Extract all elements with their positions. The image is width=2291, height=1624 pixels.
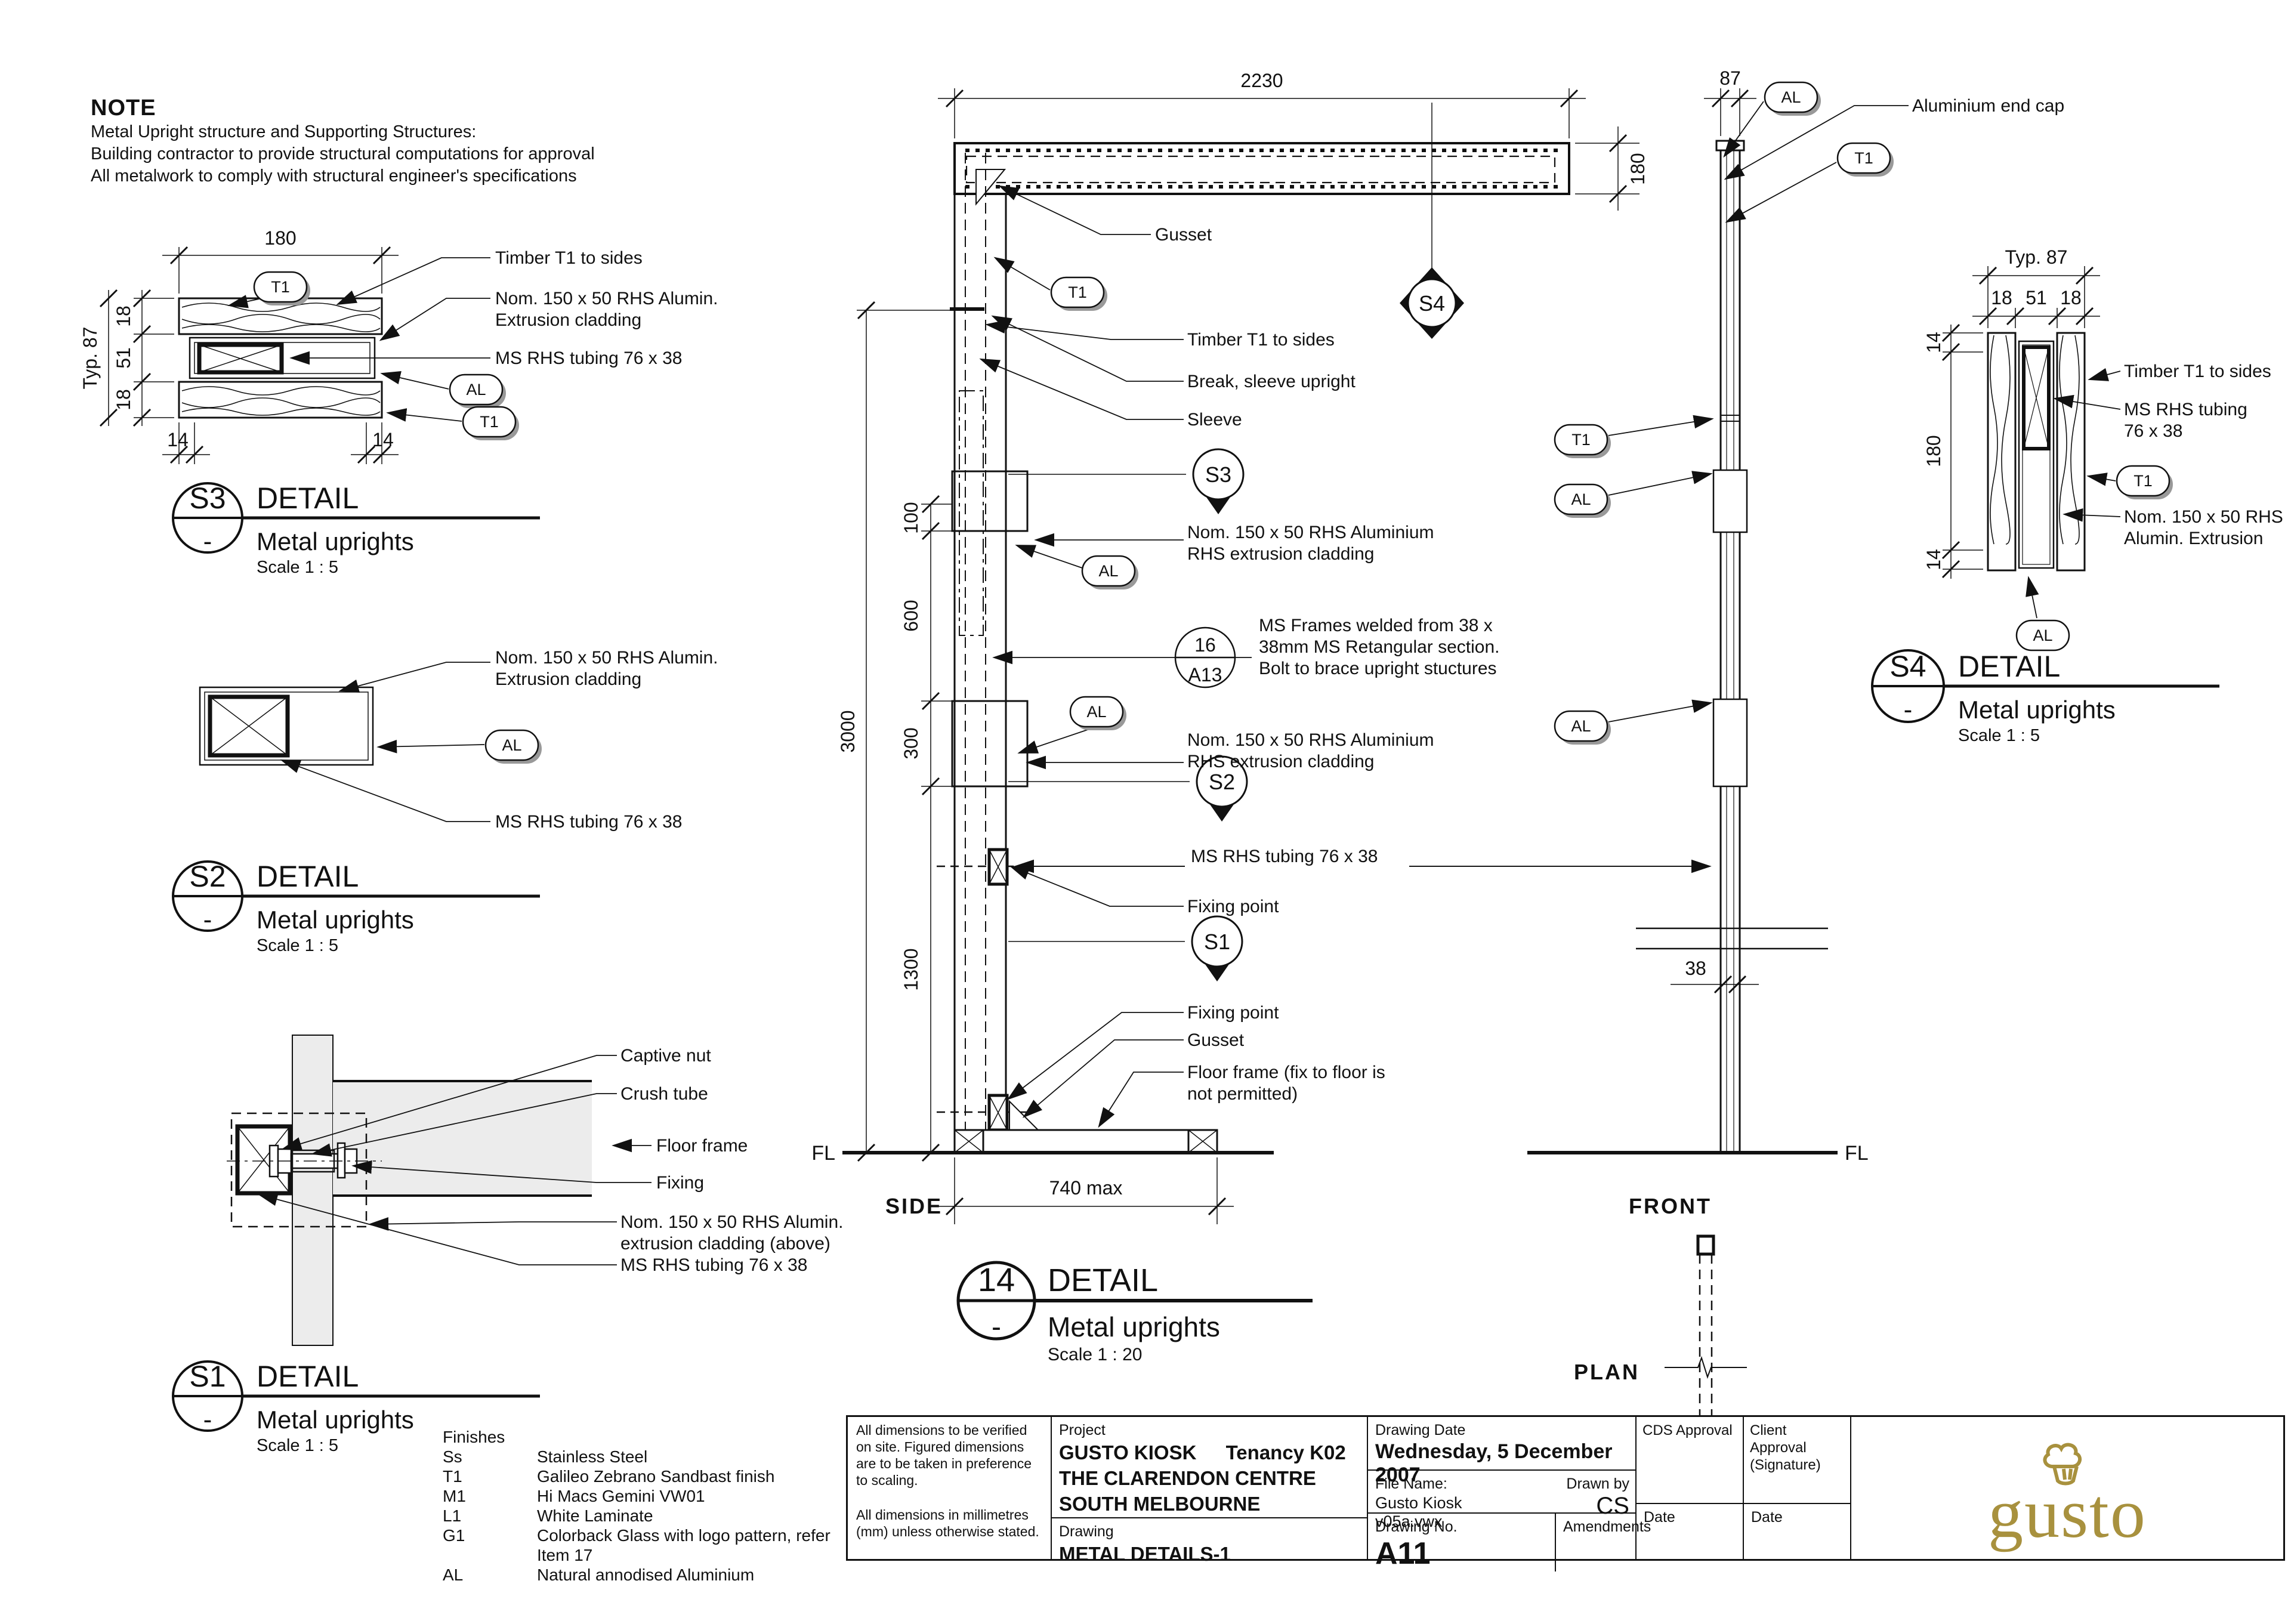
dim-300: 300	[900, 727, 922, 759]
svg-text:AL: AL	[1098, 562, 1118, 580]
svg-text:Scale 1 : 5: Scale 1 : 5	[257, 558, 338, 577]
dim-1300: 1300	[900, 948, 922, 990]
label-alum-clad: Nom. 150 x 50 RHS Alumin.	[495, 648, 718, 668]
titleblock-cds-approval: CDS Approval Date	[1637, 1417, 1744, 1559]
label-clad-above2: extrusion cladding (above)	[620, 1234, 830, 1253]
svg-text:T1: T1	[271, 278, 290, 296]
svg-text:-: -	[1904, 695, 1913, 724]
dim-100: 100	[900, 502, 922, 533]
label-timber-t1: Timber T1 to sides	[495, 248, 643, 268]
front-label: FRONT	[1629, 1194, 1712, 1218]
svg-text:Metal uprights: Metal uprights	[1958, 696, 2116, 724]
drawing-title: METAL DETAILS-1	[1052, 1540, 1367, 1567]
plan-label: PLAN	[1574, 1360, 1639, 1384]
svg-text:T1: T1	[1571, 431, 1591, 449]
svg-text:T1: T1	[1854, 149, 1873, 167]
detail-14-title: 14 - DETAIL Metal uprights Scale 1 : 20	[957, 1261, 1313, 1364]
svg-text:DETAIL: DETAIL	[1048, 1262, 1158, 1298]
project-line1: GUSTO KIOSK Tenancy K02	[1052, 1439, 1367, 1466]
fl-right: FL	[1845, 1142, 1869, 1165]
s3-figure: 180 18 51 18 Typ. 87 14 14 Timber T1 to …	[79, 227, 718, 464]
label-fixing-point: Fixing point	[1187, 1003, 1279, 1023]
s2-figure: Nom. 150 x 50 RHS Alumin. Extrusion clad…	[200, 648, 718, 832]
section-marker-s3: S3	[1008, 449, 1243, 514]
note-line: Building contractor to provide structura…	[91, 143, 747, 165]
gusto-wordmark: gusto	[1988, 1487, 2147, 1540]
client-date-label: Date	[1744, 1504, 1850, 1559]
label-rhs-alumin1: Nom. 150 x 50 RHS	[2124, 507, 2283, 527]
section-marker-s1: S1	[1008, 916, 1242, 981]
finish-item: T1Galileo Zebrano Sandbast finish	[443, 1466, 836, 1486]
t1-tag: T1	[1555, 425, 1611, 458]
label-ms-frames3: Bolt to brace upright stuctures	[1259, 659, 1497, 678]
dim-14: 14	[1923, 549, 1944, 570]
svg-text:-: -	[203, 527, 212, 556]
label-alum-end-cap: Aluminium end cap	[1912, 96, 2064, 116]
svg-text:S2: S2	[1209, 770, 1235, 794]
drawing-label: Drawing	[1052, 1518, 1367, 1540]
note-line: Metal Upright structure and Supporting S…	[91, 121, 747, 143]
svg-text:-: -	[992, 1311, 1001, 1343]
dim-typ87: Typ. 87	[79, 327, 101, 390]
date-label: Drawing Date	[1368, 1417, 1635, 1439]
dim-18: 18	[2060, 287, 2082, 308]
dim-18: 18	[113, 305, 134, 327]
finishes-legend: Finishes SsStainless Steel T1Galileo Zeb…	[443, 1427, 836, 1585]
label-alum-clad: Nom. 150 x 50 RHS Alumin.	[495, 289, 718, 308]
label-alum-clad1: Nom. 150 x 50 RHS Aluminium	[1187, 730, 1434, 750]
label-timber-t1: Timber T1 to sides	[2124, 362, 2271, 381]
al-tag: AL	[1555, 711, 1611, 745]
label-alum-clad2: RHS extrusion cladding	[1187, 544, 1375, 564]
label-floor-frame-note1: Floor frame (fix to floor is	[1187, 1063, 1385, 1082]
svg-text:S1: S1	[189, 1360, 226, 1393]
note-block: NOTE Metal Upright structure and Support…	[91, 95, 747, 187]
dim-87: 87	[1719, 67, 1741, 89]
titleblock-date-col: Drawing Date Wednesday, 5 December 2007 …	[1368, 1417, 1637, 1559]
finish-item: G1Colorback Glass with logo pattern, ref…	[443, 1526, 836, 1565]
svg-text:AL: AL	[1571, 490, 1591, 508]
label-fixing: Fixing	[656, 1173, 704, 1193]
svg-text:Scale 1 : 5: Scale 1 : 5	[1958, 726, 2040, 745]
svg-text:S4: S4	[1419, 291, 1445, 316]
titleblock-client-approval: Client Approval (Signature) Date	[1744, 1417, 1851, 1559]
title-block: All dimensions to be verified on site. F…	[846, 1415, 2285, 1561]
project-line3: SOUTH MELBOURNE	[1052, 1492, 1367, 1517]
svg-text:T1: T1	[1068, 283, 1087, 301]
dim-2230: 2230	[1240, 70, 1283, 91]
label-ms-rhs: MS RHS tubing 76 x 38	[1191, 847, 1378, 866]
t1-tag: T1	[254, 272, 310, 305]
al-tag: AL	[2017, 620, 2069, 650]
svg-text:-: -	[203, 905, 212, 934]
svg-text:A13: A13	[1188, 664, 1222, 686]
amendments-label: Amendments	[1556, 1514, 1635, 1536]
t1-tag: T1	[1051, 277, 1107, 311]
detail-ref-16-a13: 16 A13	[994, 628, 1252, 687]
label-ms-frames2: 38mm MS Retangular section.	[1259, 637, 1500, 657]
label-crush-tube: Crush tube	[620, 1084, 708, 1104]
svg-text:Scale 1 : 5: Scale 1 : 5	[257, 936, 338, 955]
label-ms-rhs: MS RHS tubing 76 x 38	[495, 812, 683, 832]
svg-text:AL: AL	[1781, 88, 1801, 106]
file-label: File Name:	[1368, 1471, 1540, 1493]
dim-180: 180	[1923, 435, 1944, 467]
label-floor-frame: Floor frame	[656, 1136, 748, 1156]
dim-14: 14	[167, 429, 189, 450]
svg-text:Scale 1 : 5: Scale 1 : 5	[257, 1436, 338, 1455]
svg-text:DETAIL: DETAIL	[257, 860, 359, 893]
svg-text:AL: AL	[1571, 717, 1591, 735]
svg-text:AL: AL	[466, 381, 486, 399]
note-title: NOTE	[91, 95, 747, 121]
s4-figure: Typ. 87 18 51 18 14 180 14 Timber T1 to …	[1923, 246, 2283, 650]
svg-text:T1: T1	[480, 413, 499, 431]
s3-title: S3 - DETAIL Metal uprights Scale 1 : 5	[173, 481, 540, 577]
dim-740max: 740 max	[1049, 1177, 1123, 1199]
al-tag: AL	[486, 730, 542, 764]
side-view: 2230 180 3000 100 600 300 1300 740 max F…	[811, 70, 1838, 1224]
titleblock-notes: All dimensions to be verified on site. F…	[848, 1417, 1052, 1559]
svg-text:14: 14	[978, 1261, 1015, 1298]
label-break-sleeve: Break, sleeve upright	[1187, 372, 1356, 391]
s2-title: S2 - DETAIL Metal uprights Scale 1 : 5	[173, 860, 540, 955]
dim-51: 51	[113, 347, 134, 369]
s1-figure: Captive nut Crush tube Floor frame Fixin…	[227, 1035, 844, 1345]
al-tag: AL	[1555, 484, 1611, 518]
svg-text:S3: S3	[1205, 462, 1231, 487]
label-ms-frames1: MS Frames welded from 38 x	[1259, 616, 1493, 635]
gusto-logo: gusto	[1988, 1435, 2147, 1540]
dim-14: 14	[1923, 332, 1944, 353]
finish-item: ALNatural annodised Aluminium	[443, 1565, 836, 1585]
label-ms-rhs: MS RHS tubing 76 x 38	[620, 1255, 808, 1275]
dim-18: 18	[1991, 287, 2012, 308]
side-label: SIDE	[885, 1194, 943, 1218]
svg-text:S2: S2	[189, 860, 226, 893]
dim-typ87: Typ. 87	[2005, 246, 2068, 268]
titleblock-project: Project GUSTO KIOSK Tenancy K02 THE CLAR…	[1052, 1417, 1368, 1559]
front-view: 87 38 FL FRONT Aluminium end cap AL T1	[1555, 67, 2064, 1218]
titleblock-logo-cell: gusto	[1851, 1417, 2283, 1559]
label-fixing-point: Fixing point	[1187, 897, 1279, 916]
al-tag: AL	[1765, 82, 1821, 116]
label-alum-clad2: Extrusion cladding	[495, 310, 641, 330]
svg-text:Metal uprights: Metal uprights	[257, 527, 414, 555]
plan-figure: PLAN	[1574, 1236, 1747, 1415]
s4-title: S4 - DETAIL Metal uprights Scale 1 : 5	[1872, 650, 2219, 745]
drawing-sheet: { "note": { "title": "NOTE", "line1": "M…	[0, 0, 2291, 1624]
svg-text:DETAIL: DETAIL	[257, 1360, 359, 1393]
finishes-title: Finishes	[443, 1427, 836, 1447]
fl-left: FL	[811, 1142, 835, 1165]
svg-text:T1: T1	[2133, 472, 2153, 490]
dim-180: 180	[264, 227, 296, 249]
svg-text:DETAIL: DETAIL	[257, 481, 359, 515]
note-line: All metalwork to comply with structural …	[91, 165, 747, 187]
project-line2: THE CLARENDON CENTRE	[1052, 1466, 1367, 1492]
svg-text:Scale 1 : 20: Scale 1 : 20	[1048, 1345, 1142, 1364]
dim-600: 600	[900, 600, 922, 631]
dwgno-value: A11	[1368, 1536, 1555, 1571]
svg-text:AL: AL	[2033, 626, 2052, 644]
t1-tag: T1	[463, 407, 519, 440]
dwgno-label: Drawing No.	[1368, 1514, 1555, 1536]
finish-item: M1Hi Macs Gemini VW01	[443, 1486, 836, 1506]
label-ms-rhs: MS RHS tubing 76 x 38	[495, 348, 683, 368]
label-captive-nut: Captive nut	[620, 1046, 711, 1066]
project-label: Project	[1052, 1417, 1367, 1439]
dim-180: 180	[1627, 153, 1648, 184]
svg-text:Metal uprights: Metal uprights	[257, 1406, 414, 1434]
cad-drawing: 180 18 51 18 Typ. 87 14 14 Timber T1 to …	[0, 0, 2291, 1624]
svg-text:DETAIL: DETAIL	[1958, 650, 2060, 683]
al-tag: AL	[1082, 556, 1138, 589]
label-alum-clad1: Nom. 150 x 50 RHS Aluminium	[1187, 523, 1434, 542]
al-tag: AL	[450, 375, 506, 408]
finish-item: SsStainless Steel	[443, 1447, 836, 1466]
label-rhs-alumin2: Alumin. Extrusion	[2124, 529, 2263, 548]
svg-text:AL: AL	[1086, 703, 1106, 721]
al-tag: AL	[1070, 697, 1126, 730]
label-clad-above1: Nom. 150 x 50 RHS Alumin.	[620, 1212, 844, 1232]
svg-text:-: -	[203, 1405, 212, 1434]
svg-text:AL: AL	[502, 736, 521, 754]
svg-text:S4: S4	[1889, 650, 1926, 683]
label-gusset: Gusset	[1187, 1030, 1245, 1050]
svg-text:Metal uprights: Metal uprights	[257, 906, 414, 934]
dim-38: 38	[1685, 958, 1706, 979]
dim-51: 51	[2026, 287, 2047, 308]
label-ms-rhs2: 76 x 38	[2124, 421, 2182, 441]
svg-text:Metal uprights: Metal uprights	[1048, 1311, 1220, 1342]
label-alum-clad2: Extrusion cladding	[495, 669, 641, 689]
t1-tag: T1	[1838, 143, 1894, 177]
section-marker-s4: S4	[1400, 103, 1464, 339]
dim-18: 18	[113, 389, 134, 410]
label-alum-clad2: RHS extrusion cladding	[1187, 752, 1375, 771]
label-ms-rhs1: MS RHS tubing	[2124, 400, 2247, 419]
finish-item: L1White Laminate	[443, 1506, 836, 1526]
label-sleeve: Sleeve	[1187, 410, 1242, 430]
svg-text:S1: S1	[1204, 930, 1230, 954]
svg-text:16: 16	[1194, 634, 1216, 656]
label-gusset: Gusset	[1155, 225, 1212, 245]
dim-14: 14	[372, 429, 394, 450]
svg-text:S3: S3	[189, 481, 226, 515]
label-floor-frame-note2: not permitted)	[1187, 1084, 1298, 1104]
dim-3000: 3000	[837, 710, 859, 752]
t1-tag: T1	[2117, 466, 2173, 499]
label-timber-t1: Timber T1 to sides	[1187, 330, 1335, 350]
cds-date-label: Date	[1637, 1504, 1743, 1559]
drawnby-label: Drawn by	[1540, 1471, 1629, 1493]
